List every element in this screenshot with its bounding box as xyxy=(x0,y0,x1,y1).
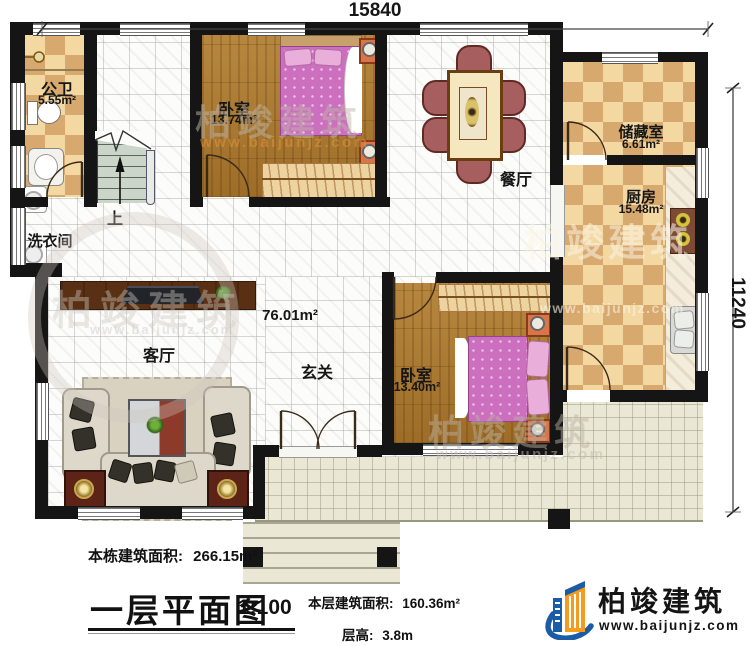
watermark-website: www.baijunjz.com xyxy=(200,134,369,151)
door-arc xyxy=(567,347,610,390)
label-bathroom-area: 5.55m² xyxy=(27,93,87,107)
floor-plan: 公卫 5.55m² 卧室 13.74m² 餐厅 储藏室 6.61m² 厨房 15… xyxy=(0,0,750,646)
logo-window xyxy=(574,594,576,628)
floor-height-label: 层高: xyxy=(342,628,374,643)
logo-window xyxy=(569,596,571,628)
company-name: 柏竣建筑 xyxy=(598,580,726,620)
door-arc xyxy=(317,411,355,449)
label-storage-area: 6.61m² xyxy=(609,137,673,151)
floor-area-value: 160.36m² xyxy=(402,596,460,611)
logo-window xyxy=(555,614,560,616)
company-website: www.baijunjz.com xyxy=(599,618,740,633)
total-area-value: 266.15m² xyxy=(193,548,257,565)
total-area-row: 本栋建筑面积: 266.15m² xyxy=(88,545,257,566)
up-arrow-icon xyxy=(116,156,125,172)
dimension-right-value: 11240 xyxy=(726,263,748,343)
floor-area-label: 本层建筑面积: xyxy=(308,596,394,611)
watermark-website: www.baijunjz.com xyxy=(540,300,685,316)
logo-window xyxy=(555,620,560,622)
door-arc xyxy=(568,122,606,160)
label-bedroom2-area: 13.40m² xyxy=(388,380,446,394)
floor-height-value: 3.8m xyxy=(382,628,413,643)
company-logo-icon xyxy=(545,576,595,640)
floor-area-row: 本层建筑面积: 160.36m² xyxy=(308,592,460,612)
label-dining: 餐厅 xyxy=(486,166,546,190)
shower-icon xyxy=(34,52,44,62)
door-arc xyxy=(394,277,436,319)
total-area-label: 本栋建筑面积: xyxy=(88,548,183,565)
label-foyer: 玄关 xyxy=(294,359,340,383)
stair-break-mask xyxy=(95,131,151,149)
logo-window xyxy=(579,592,581,628)
door-arc xyxy=(207,155,249,197)
door-arc xyxy=(281,411,319,449)
floor-height-row: 层高: 3.8m xyxy=(342,624,413,644)
dimension-top-value: 15840 xyxy=(340,0,410,22)
logo-window xyxy=(555,602,560,604)
watermark-website: www.baijunjz.com xyxy=(436,446,605,463)
door-arc xyxy=(47,162,82,197)
watermark-company: 柏竣建筑 xyxy=(524,212,692,267)
title-underline-thick xyxy=(88,628,295,631)
logo-window xyxy=(555,608,560,610)
watermark-website: www.baijunjz.com xyxy=(90,322,234,337)
label-hall-area: 76.01m² xyxy=(252,307,328,324)
plan-scale: 1:100 xyxy=(238,596,292,620)
title-underline-thin xyxy=(88,633,295,634)
